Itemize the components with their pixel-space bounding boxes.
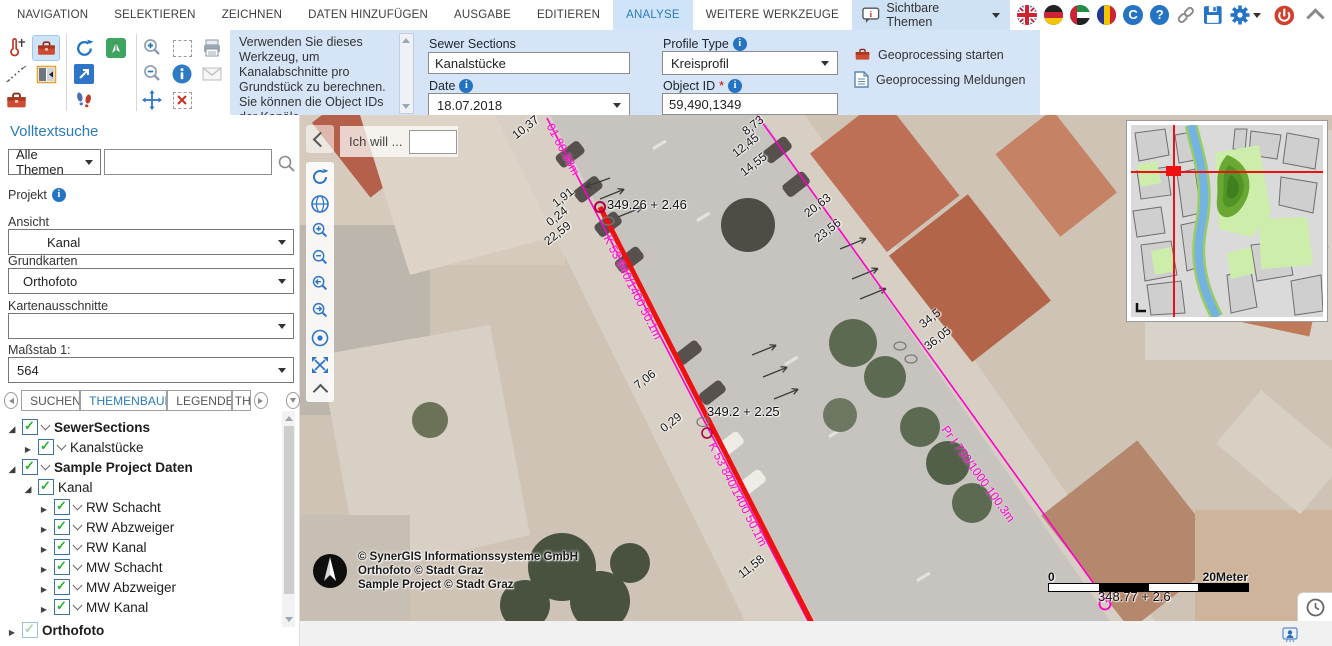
geoprocessing-form: Sewer Sections Profile Typei Kreisprofil…	[415, 30, 840, 115]
speech-bubble-info-icon: i	[862, 7, 881, 24]
scale-select[interactable]: 564	[8, 357, 294, 383]
tabs-more-button[interactable]	[286, 392, 300, 409]
elevation-label: 349.26 + 2.46	[607, 197, 687, 212]
checkbox[interactable]	[54, 559, 70, 575]
basemap-select[interactable]: Orthofoto	[8, 268, 294, 294]
sidebar-tabs: SUCHEN THEMENBAUM LEGENDE THEM	[0, 389, 300, 412]
search-button[interactable]	[274, 151, 298, 175]
toolbox-icon[interactable]	[3, 88, 29, 112]
tabs-scroll-left-button[interactable]	[4, 392, 18, 409]
geoprocessing-start-link[interactable]: Geoprocessing starten	[854, 46, 1004, 63]
tree-item-sample-project-daten[interactable]: Sample Project Daten	[6, 457, 193, 477]
tab-suchen[interactable]: SUCHEN	[21, 390, 80, 411]
chevron-down-icon[interactable]	[73, 501, 83, 511]
menu-daten-hinzufuegen[interactable]: DATEN HINZUFÜGEN	[295, 0, 441, 30]
menu-navigation[interactable]: NAVIGATION	[4, 0, 101, 30]
tree-item-sewersections[interactable]: SewerSections	[6, 417, 150, 437]
info-icon[interactable]: i	[728, 79, 742, 93]
weboffice-gis-app: NAVIGATION SELEKTIEREN ZEICHNEN DATEN HI…	[0, 0, 1332, 646]
scale-label: Maßstab 1:	[8, 343, 71, 357]
map-viewport[interactable]: 10,37 8,73 12,45 14,55 1,91 0,24 22,59 2…	[300, 115, 1332, 621]
collapse-icon[interactable]	[22, 480, 34, 495]
project-label: Projekti	[8, 188, 66, 202]
chevron-down-icon[interactable]	[73, 521, 83, 531]
settings-button[interactable]	[1230, 5, 1261, 25]
menu-bar: NAVIGATION SELEKTIEREN ZEICHNEN DATEN HI…	[0, 0, 1332, 30]
tree-item-orthofoto[interactable]: Orthofoto	[6, 620, 104, 640]
toolbar-separator	[66, 34, 67, 111]
share-link-icon[interactable]	[71, 62, 97, 86]
tree-item-mw-kanal[interactable]: MW Kanal	[38, 597, 148, 617]
checkbox[interactable]	[22, 622, 38, 638]
logout-power-icon[interactable]	[1274, 5, 1295, 26]
collapse-icon[interactable]	[6, 420, 18, 435]
compass-north-icon	[312, 553, 348, 589]
search-icon	[277, 154, 296, 173]
geoprocessing-toolbox-icon-active[interactable]	[33, 36, 59, 60]
overview-map[interactable]	[1126, 120, 1328, 322]
map-extents-select[interactable]	[8, 313, 294, 339]
tree-scrollbar[interactable]	[282, 411, 295, 627]
tree-item-mw-schacht[interactable]: MW Schacht	[38, 557, 163, 577]
measure-tool-icon[interactable]	[103, 36, 129, 60]
info-icon[interactable]: i	[733, 37, 747, 51]
full-extent-icon[interactable]	[310, 355, 330, 375]
overview-extent-marker[interactable]	[1166, 166, 1181, 176]
redo-icon[interactable]	[71, 36, 97, 60]
scalebar-min-label: 0	[1048, 570, 1055, 584]
expand-icon[interactable]	[38, 540, 50, 555]
map-extents-label: Kartenausschnitte	[8, 299, 108, 313]
tab-themen-cut[interactable]: THEM	[232, 390, 251, 411]
profile-type-label: Profile Typei	[663, 37, 747, 51]
menu-selektieren[interactable]: SELEKTIEREN	[101, 0, 208, 30]
elevation-label: 349.2 + 2.25	[707, 404, 780, 419]
language-flag-de[interactable]	[1044, 5, 1064, 25]
chevron-down-icon[interactable]	[41, 461, 51, 471]
time-slider-button[interactable]	[1297, 592, 1332, 621]
expand-icon[interactable]	[38, 560, 50, 575]
expand-icon[interactable]	[6, 623, 18, 638]
language-flag-ae[interactable]	[1070, 5, 1090, 25]
footprints-icon[interactable]	[71, 88, 97, 112]
view-select[interactable]: Kanal	[8, 229, 294, 255]
menu-weitere-werkzeuge[interactable]: WEITERE WERKZEUGE	[693, 0, 852, 30]
map-tool-stack	[306, 162, 334, 402]
info-icon[interactable]	[169, 62, 195, 86]
menu-zeichnen[interactable]: ZEICHNEN	[209, 0, 295, 30]
zoom-out-icon[interactable]	[310, 248, 330, 268]
toolbox-icon	[854, 46, 871, 63]
scalebar	[1048, 583, 1249, 592]
sewer-sections-label: Sewer Sections	[429, 37, 516, 51]
chevron-down-icon[interactable]	[73, 541, 83, 551]
globe-icon[interactable]	[310, 194, 330, 214]
ich-will-quickbar: Ich will ...	[340, 126, 458, 157]
ich-will-input[interactable]	[409, 130, 457, 154]
expand-icon[interactable]	[22, 440, 34, 455]
checkbox[interactable]	[54, 519, 70, 535]
zoom-in-icon[interactable]	[310, 221, 330, 241]
crescent-language-icon[interactable]: C	[1123, 5, 1143, 25]
profile-type-select[interactable]: Kreisprofil	[662, 51, 838, 75]
object-id-input[interactable]	[662, 93, 838, 115]
toolbar-separator	[136, 34, 137, 111]
zoom-in-icon[interactable]	[139, 36, 165, 60]
tabs-scroll-right-button[interactable]	[254, 392, 268, 409]
refresh-icon[interactable]	[310, 167, 330, 187]
expand-icon[interactable]	[38, 520, 50, 535]
fulltext-search-title[interactable]: Volltextsuche	[10, 123, 98, 140]
fulltext-search-input[interactable]	[104, 149, 272, 175]
checkbox[interactable]	[22, 419, 38, 435]
collapse-toolbar-icon[interactable]	[1306, 8, 1324, 26]
tree-item-rw-kanal[interactable]: RW Kanal	[38, 537, 147, 557]
visible-themes-label: Sichtbare Themen	[886, 1, 985, 29]
basemap-label: Grundkarten	[8, 254, 77, 268]
checkbox[interactable]	[54, 539, 70, 555]
instruction-scrollbar[interactable]	[399, 33, 414, 114]
ich-will-label: Ich will ...	[349, 134, 402, 149]
date-label: Datei	[429, 79, 473, 93]
expand-icon[interactable]	[38, 600, 50, 615]
chevron-down-icon	[992, 13, 1000, 18]
object-id-label: Object ID*i	[663, 79, 742, 93]
chevron-down-icon[interactable]	[73, 581, 83, 591]
scalebar-max-label: 20Meter	[1184, 570, 1248, 584]
checkbox[interactable]	[54, 579, 70, 595]
help-icon[interactable]: ?	[1150, 5, 1170, 25]
profile-tool-icon[interactable]	[3, 36, 29, 60]
select-rectangle-icon[interactable]	[169, 36, 195, 60]
expand-icon[interactable]	[38, 580, 50, 595]
chevron-down-icon[interactable]	[73, 601, 83, 611]
zoom-out-icon[interactable]	[139, 62, 165, 86]
center-map-icon[interactable]	[310, 328, 330, 348]
gear-icon	[1230, 5, 1250, 25]
save-icon[interactable]	[1203, 5, 1223, 25]
toolbar: Verwenden Sie dieses Werkzeug, um Kanala…	[0, 30, 1332, 115]
collapse-icon[interactable]	[6, 460, 18, 475]
visible-themes-button[interactable]: i Sichtbare Themen	[852, 0, 1010, 30]
chevron-down-icon	[1253, 13, 1261, 18]
menu-editieren[interactable]: EDITIEREN	[524, 0, 613, 30]
status-strip	[300, 621, 1332, 646]
chevron-down-icon[interactable]	[73, 561, 83, 571]
zoom-previous-icon[interactable]	[310, 274, 330, 294]
overview-map-canvas	[1131, 125, 1323, 317]
chevron-down-icon[interactable]	[57, 441, 67, 451]
tab-themenbaum[interactable]: THEMENBAUM	[80, 390, 167, 411]
date-select[interactable]: 18.07.2018	[428, 93, 630, 117]
language-flag-en[interactable]	[1017, 5, 1037, 25]
tree-item-mw-abzweiger[interactable]: MW Abzweiger	[38, 577, 176, 597]
tree-item-rw-schacht[interactable]: RW Schacht	[38, 497, 161, 517]
view-label: Ansicht	[8, 215, 49, 229]
info-icon[interactable]: i	[459, 79, 473, 93]
checkbox[interactable]	[38, 479, 54, 495]
tree-item-rw-abzweiger[interactable]: RW Abzweiger	[38, 517, 174, 537]
clock-icon	[1306, 598, 1325, 617]
pan-move-icon[interactable]	[139, 88, 165, 112]
collapse-tools-icon[interactable]	[312, 383, 328, 399]
language-flag-ro[interactable]	[1097, 5, 1117, 25]
menu-analyse[interactable]: ANALYSE	[613, 0, 693, 30]
tool-instruction-panel: Verwenden Sie dieses Werkzeug, um Kanala…	[230, 30, 415, 115]
geoprocessing-messages-link[interactable]: Geoprocessing Meldungen	[854, 71, 1025, 88]
email-icon[interactable]	[199, 62, 225, 86]
geoprocessing-actions: Geoprocessing starten Geoprocessing Meld…	[840, 30, 1040, 115]
support-session-icon[interactable]	[1282, 627, 1298, 643]
main-menu: NAVIGATION SELEKTIEREN ZEICHNEN DATEN HI…	[4, 0, 852, 30]
document-icon	[854, 71, 869, 88]
tab-legende[interactable]: LEGENDE	[167, 390, 231, 411]
info-icon[interactable]: i	[52, 188, 66, 202]
swipe-layers-icon[interactable]	[33, 62, 59, 86]
theme-filter-select[interactable]: Alle Themen	[8, 149, 101, 175]
tree-item-kanalstuecke[interactable]: Kanalstücke	[22, 437, 144, 457]
link-icon[interactable]	[1176, 5, 1196, 25]
tree-item-kanal[interactable]: Kanal	[22, 477, 93, 497]
checkbox[interactable]	[54, 599, 70, 615]
print-icon[interactable]	[199, 36, 225, 60]
clear-selection-icon[interactable]	[169, 88, 195, 112]
checkbox[interactable]	[22, 459, 38, 475]
measure-line-icon[interactable]	[3, 62, 29, 86]
menu-ausgabe[interactable]: AUSGABE	[441, 0, 524, 30]
topbar-right: i Sichtbare Themen	[852, 0, 1332, 30]
collapse-sidebar-button[interactable]	[306, 125, 334, 153]
zoom-next-icon[interactable]	[310, 301, 330, 321]
checkbox[interactable]	[54, 499, 70, 515]
map-copyright: © SynerGIS Informationssysteme GmbH Orth…	[358, 550, 578, 592]
chevron-down-icon[interactable]	[41, 421, 51, 431]
expand-icon[interactable]	[38, 500, 50, 515]
checkbox[interactable]	[38, 439, 54, 455]
sidebar: Volltextsuche Alle Themen Projekti Ansic…	[0, 115, 300, 646]
sewer-sections-input[interactable]	[428, 52, 630, 74]
